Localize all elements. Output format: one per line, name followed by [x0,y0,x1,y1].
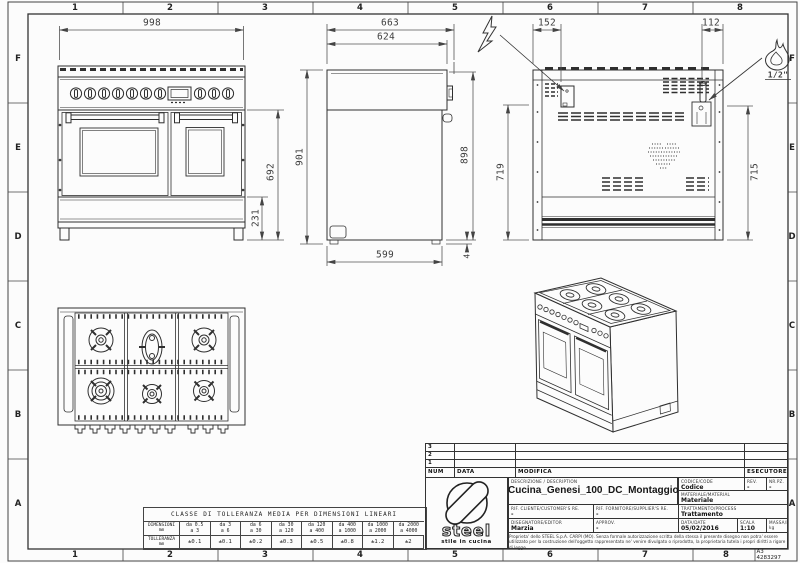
back-vents-lower [602,178,709,190]
grid-row-d-right: D [788,232,795,242]
top-right-rail [230,316,239,412]
material-value: Materiale [679,497,787,504]
tolerance-value: ±0.8 [333,536,364,549]
designer-value: Marzia [509,525,593,532]
grid-col-6-bottom: 6 [547,550,553,560]
back-bumper [542,217,715,228]
grid-row-e-left: E [15,143,21,153]
grid-col-1-bottom: 1 [72,550,78,560]
front-view [58,66,245,240]
tolerance-tol-label: TOLLERANZA mm [144,536,180,549]
grid-row-c-right: C [789,321,795,331]
side-dimensions [300,24,476,266]
dim-side-height-back: 898 [460,146,471,164]
date-cell: DATA/DATE 05/02/2016 [678,518,738,533]
tolerance-dim-label: DIMENSIONI mm [144,522,180,536]
flame-leader [709,58,762,100]
grid-col-3-bottom: 3 [262,550,268,560]
legal-text: Proprieta' dello STEEL S.p.A. CARPI (MO)… [509,534,787,550]
supplier-ref-value: - [594,511,678,518]
grid-row-b-left: B [15,410,21,420]
description-label: DESCRIZIONE / DESCRIPTION [509,478,677,484]
grid-col-5-bottom: 5 [452,550,458,560]
side-hook [443,114,452,122]
material-cell: MATERIALE/MATERIAL Materiale [678,490,788,505]
burner-right-rear [192,328,216,352]
back-electrical-box [561,86,574,107]
grid-row-d-left: D [14,232,21,242]
scale-cell: SCALA 1:10 [737,518,767,533]
supplier-ref-cell: RIF. FORNITORE/SUPPLIER'S RE. - [593,504,679,519]
tolerance-range: da 400 a 1000 [333,522,364,536]
mass-label: MASSA/MASS kg [767,519,787,530]
back-vents-middle [558,113,684,120]
top-knob-silhouettes [75,425,228,433]
grid-col-2-top: 2 [167,3,173,13]
grid-row-f-left: F [15,54,21,64]
designer-cell: DISEGNATORE/EDITOR Marzia [508,518,594,533]
tolerance-table: CLASSE DI TOLLERANZA MEDIA PER DIMENSION… [143,507,427,550]
burner-center-oval [139,330,165,364]
dim-side-height-front: 901 [295,148,306,166]
tolerance-value: ±0.2 [241,536,272,549]
isometric-view [535,278,678,432]
dim-side-depth-top: 624 [377,32,395,43]
grid-row-a-left: A [15,499,22,509]
dim-back-elec-offset: 152 [538,18,556,29]
back-dimensions [503,24,753,240]
front-dimensions [60,26,285,240]
dim-front-width: 998 [143,18,161,29]
grid-col-6-top: 6 [547,3,553,13]
treatment-cell: TRATTAMENTO/PROCESS Trattamento [678,504,788,519]
grid-row-b-right: B [789,410,795,420]
side-view [327,62,454,244]
back-view [533,69,723,241]
grid-col-1-top: 1 [72,3,78,13]
steel-logo-mark [438,480,496,526]
back-vents-upper-left [545,84,558,96]
dim-front-oven-height: 692 [266,163,277,181]
front-knobs [70,87,233,103]
tolerance-value: ±0.1 [211,536,242,549]
dim-side-depth-total: 663 [381,18,399,29]
client-ref-cell: RIF. CLIENTE/CUSTOMER'S RE. - [508,504,594,519]
grid-col-4-bottom: 4 [357,550,363,560]
top-grate-bars [75,313,228,421]
treatment-value: Trattamento [679,511,787,518]
logo-cell: steel stile in cucina [425,477,508,549]
burner-center-front [143,385,162,404]
tolerance-value: ±2 [394,536,425,549]
front-left-door [62,113,168,196]
side-rear-connector [447,86,453,100]
dim-front-plinth: 231 [251,209,262,227]
tolerance-range: da 2000 a 4000 [394,522,425,536]
date-value: 05/02/2016 [679,525,737,532]
top-view [58,308,245,433]
drawing-title: Cucina_Genesi_100_DC_Montaggio [508,485,678,496]
side-foot-detail [330,226,346,238]
nrpz-cell: NR.PZ. - [766,477,788,491]
burner-left-front [89,328,113,352]
front-door-windows [80,128,224,177]
rev-cell: REV. - [744,477,767,491]
client-ref-value: - [509,511,593,518]
back-gas-inlet [692,82,711,127]
gas-size-label: 1/2" [768,71,788,80]
code-cell: CODICE/CODE Codice [678,477,745,491]
grid-row-e-right: E [789,143,795,153]
top-left-rail [64,316,73,412]
grid-row-f-right: F [789,54,795,64]
front-door-handles [66,113,238,123]
grid-col-8-bottom: 8 [723,550,729,560]
sheet-code: A3 4283297 [757,549,786,561]
grid-row-a-right: A [789,499,796,509]
tolerance-value: ±0.5 [302,536,333,549]
back-perforation-pattern [648,144,680,168]
supplier-ref-label: RIF. FORNITORE/SUPPLIER'S RE. [594,505,678,511]
grid-col-4-top: 4 [357,3,363,13]
dim-side-depth-bottom: 599 [376,250,394,261]
grid-col-8-top: 8 [737,3,743,13]
grid-col-5-top: 5 [452,3,458,13]
scale-value: 1:10 [738,525,766,532]
tolerance-range: da 6 a 30 [241,522,272,536]
grid-col-3-top: 3 [262,3,268,13]
approv-value: - [594,525,678,532]
iso-right-face [610,311,678,432]
tolerance-value: ±0.1 [180,536,211,549]
mass-cell: MASSA/MASS kg - [766,518,788,533]
grid-col-7-bottom: 7 [642,550,648,560]
front-right-door [171,113,242,196]
grid-row-c-left: C [15,321,21,331]
logo-tagline: stile in cucina [426,539,507,545]
burner-left-rear-wok [88,378,114,404]
grid-col-2-bottom: 2 [167,550,173,560]
dim-side-foot: 4 [463,253,472,258]
approv-cell: APPROV. - [593,518,679,533]
lightning-leader [500,35,564,91]
tolerance-range: da 3 a 6 [211,522,242,536]
tolerance-table-title: CLASSE DI TOLLERANZA MEDIA PER DIMENSION… [144,508,424,522]
drawing-sheet: 998 692 231 663 624 901 898 599 4 152 11… [0,0,800,563]
front-feet [60,228,243,240]
tolerance-range: da 1000 a 2000 [363,522,394,536]
burner-right-front [194,381,215,402]
front-display [168,87,191,103]
tolerance-value: ±1.2 [363,536,394,549]
tolerance-range: da 30 a 120 [272,522,303,536]
tolerance-range: da 120 a 400 [302,522,333,536]
tolerance-range: da 0.5 a 3 [180,522,211,536]
front-drawer [58,197,245,222]
tolerance-value: ±0.3 [272,536,303,549]
dim-back-height-right: 715 [750,163,761,181]
dim-back-height-left: 719 [496,163,507,181]
top-grate-fingers [78,317,226,418]
dim-back-gas-offset: 112 [702,18,720,29]
grid-col-7-top: 7 [642,3,648,13]
